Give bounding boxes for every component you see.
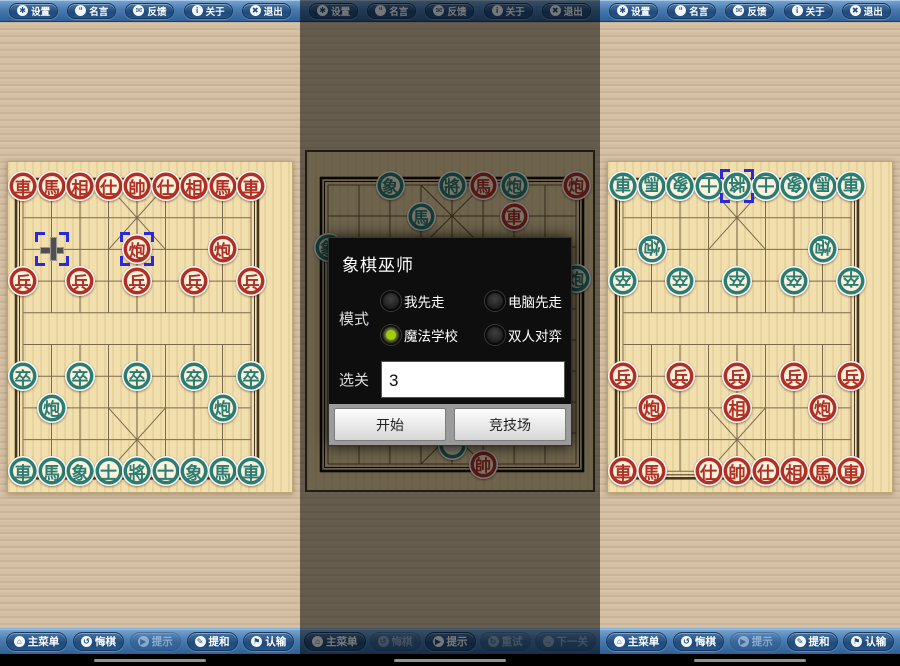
mode-options: 我先走 电脑先走 魔法学校 双人对弈 bbox=[381, 284, 565, 352]
home-strip bbox=[300, 654, 600, 666]
undo-button[interactable]: ↺悔棋 bbox=[73, 632, 124, 651]
button-label: 主菜单 bbox=[628, 634, 660, 649]
speech-icon: “ bbox=[675, 5, 686, 16]
piece-馬[interactable]: 馬 bbox=[637, 171, 667, 201]
piece-卒[interactable]: 卒 bbox=[8, 361, 38, 391]
piece-馬[interactable]: 馬 bbox=[208, 456, 238, 486]
piece-char: 士 bbox=[94, 456, 124, 486]
piece-char: 炮 bbox=[808, 234, 838, 264]
panel-game-left: ✱设置“名言✉反馈i关于✖退出車馬相仕帥仕相馬車炮炮兵兵兵兵兵卒卒卒卒卒炮炮車馬… bbox=[0, 0, 300, 666]
button-label: 提示 bbox=[752, 634, 773, 649]
piece-炮[interactable]: 炮 bbox=[637, 393, 667, 423]
radio-icon bbox=[485, 325, 505, 345]
exit-icon: ✖ bbox=[250, 5, 261, 16]
button-label: 悔棋 bbox=[695, 634, 716, 649]
gear-icon: ✱ bbox=[617, 5, 628, 16]
main-menu-button[interactable]: ⌂主菜单 bbox=[606, 632, 668, 651]
piece-char: 卒 bbox=[608, 266, 638, 296]
piece-char: 卒 bbox=[722, 266, 752, 296]
home-strip bbox=[600, 654, 900, 666]
about-button[interactable]: i关于 bbox=[184, 3, 233, 19]
radio-two-player[interactable]: 双人对弈 bbox=[485, 325, 565, 345]
piece-char: 車 bbox=[236, 171, 266, 201]
mail-icon: ✉ bbox=[133, 5, 144, 16]
piece-象[interactable]: 象 bbox=[665, 171, 695, 201]
level-select-dialog: 象棋巫师 模式 我先走 电脑先走 魔法学校 bbox=[328, 237, 572, 446]
piece-象[interactable]: 象 bbox=[65, 456, 95, 486]
piece-char: 卒 bbox=[236, 361, 266, 391]
piece-char: 車 bbox=[8, 456, 38, 486]
quotes-button[interactable]: “名言 bbox=[667, 3, 716, 19]
piece-卒[interactable]: 卒 bbox=[836, 266, 866, 296]
main-menu-button[interactable]: ⌂主菜单 bbox=[6, 632, 68, 651]
piece-char: 卒 bbox=[179, 361, 209, 391]
resign-button[interactable]: ⚑认输 bbox=[243, 632, 294, 651]
piece-將[interactable]: 將 bbox=[122, 456, 152, 486]
xiangqi-board: 車馬相仕帥仕相馬車炮炮兵兵兵兵兵卒卒卒卒卒炮炮車馬象士將士象馬車 bbox=[7, 161, 293, 493]
piece-兵[interactable]: 兵 bbox=[608, 361, 638, 391]
radio-label: 电脑先走 bbox=[508, 291, 562, 311]
piece-兵[interactable]: 兵 bbox=[179, 266, 209, 296]
exit-button[interactable]: ✖退出 bbox=[842, 3, 891, 19]
button-label: 关于 bbox=[206, 4, 225, 18]
home-indicator[interactable] bbox=[694, 659, 806, 662]
button-label: 提和 bbox=[809, 634, 830, 649]
piece-卒[interactable]: 卒 bbox=[722, 266, 752, 296]
piece-char: 兵 bbox=[122, 266, 152, 296]
home-icon: ⌂ bbox=[614, 636, 625, 647]
piece-將[interactable]: 將 bbox=[722, 171, 752, 201]
feedback-button[interactable]: ✉反馈 bbox=[725, 3, 774, 19]
offer-draw-button[interactable]: ✎提和 bbox=[187, 632, 238, 651]
feedback-button[interactable]: ✉反馈 bbox=[125, 3, 174, 19]
piece-char: 車 bbox=[8, 171, 38, 201]
piece-char: 馬 bbox=[37, 456, 67, 486]
piece-char: 馬 bbox=[208, 456, 238, 486]
piece-char: 炮 bbox=[37, 393, 67, 423]
radio-label: 我先走 bbox=[404, 291, 445, 311]
piece-仕[interactable]: 仕 bbox=[694, 456, 724, 486]
button-label: 认输 bbox=[865, 634, 886, 649]
arena-button[interactable]: 竞技场 bbox=[454, 408, 566, 441]
radio-computer-first[interactable]: 电脑先走 bbox=[485, 291, 565, 311]
piece-仕[interactable]: 仕 bbox=[94, 171, 124, 201]
home-indicator[interactable] bbox=[394, 659, 506, 662]
piece-車[interactable]: 車 bbox=[836, 171, 866, 201]
dialog-title: 象棋巫师 bbox=[342, 251, 414, 276]
piece-char: 相 bbox=[722, 393, 752, 423]
piece-char: 車 bbox=[836, 456, 866, 486]
piece-車[interactable]: 車 bbox=[608, 456, 638, 486]
piece-帥[interactable]: 帥 bbox=[122, 171, 152, 201]
piece-相[interactable]: 相 bbox=[722, 393, 752, 423]
piece-char: 炮 bbox=[122, 234, 152, 264]
button-label: 退出 bbox=[864, 4, 883, 18]
piece-車[interactable]: 車 bbox=[236, 456, 266, 486]
piece-兵[interactable]: 兵 bbox=[236, 266, 266, 296]
board-grid bbox=[8, 162, 294, 494]
hint-button[interactable]: ▶提示 bbox=[730, 632, 781, 651]
pencil-icon: ✎ bbox=[195, 636, 206, 647]
piece-char: 車 bbox=[836, 171, 866, 201]
piece-char: 車 bbox=[236, 456, 266, 486]
piece-char: 兵 bbox=[836, 361, 866, 391]
level-input[interactable]: 3 bbox=[381, 361, 565, 398]
piece-車[interactable]: 車 bbox=[8, 171, 38, 201]
radio-i-go-first[interactable]: 我先走 bbox=[381, 291, 485, 311]
bottom-toolbar: ⌂主菜单↺悔棋▶提示✎提和⚑认输 bbox=[600, 628, 900, 654]
screen: ✱设置“名言✉反馈i关于✖退出車馬相仕帥仕相馬車炮炮兵兵兵兵兵卒卒卒卒卒炮炮車馬… bbox=[0, 0, 900, 666]
piece-char: 兵 bbox=[665, 361, 695, 391]
button-label: 认输 bbox=[265, 634, 286, 649]
piece-兵[interactable]: 兵 bbox=[722, 361, 752, 391]
piece-char: 象 bbox=[779, 171, 809, 201]
top-toolbar: ✱设置“名言✉反馈i关于✖退出 bbox=[600, 0, 900, 22]
radio-magic-school[interactable]: 魔法学校 bbox=[381, 325, 485, 345]
piece-char: 炮 bbox=[208, 234, 238, 264]
piece-char: 卒 bbox=[665, 266, 695, 296]
button-label: 反馈 bbox=[747, 4, 766, 18]
level-row: 选关 3 bbox=[339, 360, 565, 398]
piece-兵[interactable]: 兵 bbox=[836, 361, 866, 391]
piece-char: 炮 bbox=[808, 393, 838, 423]
button-label: 反馈 bbox=[147, 4, 166, 18]
resign-button[interactable]: ⚑认输 bbox=[843, 632, 894, 651]
radio-label: 双人对弈 bbox=[508, 325, 562, 345]
undo-icon: ↺ bbox=[81, 636, 92, 647]
piece-相[interactable]: 相 bbox=[179, 171, 209, 201]
button-label: 设置 bbox=[31, 4, 50, 18]
piece-兵[interactable]: 兵 bbox=[779, 361, 809, 391]
button-label: 名言 bbox=[89, 4, 108, 18]
piece-char: 卒 bbox=[8, 361, 38, 391]
piece-char: 卒 bbox=[836, 266, 866, 296]
settings-button[interactable]: ✱设置 bbox=[609, 3, 658, 19]
piece-char: 相 bbox=[179, 171, 209, 201]
radio-icon bbox=[381, 291, 401, 311]
piece-char: 兵 bbox=[8, 266, 38, 296]
undo-button[interactable]: ↺悔棋 bbox=[673, 632, 724, 651]
piece-char: 兵 bbox=[608, 361, 638, 391]
mode-row: 模式 我先走 电脑先走 魔法学校 bbox=[339, 284, 565, 352]
piece-馬[interactable]: 馬 bbox=[808, 456, 838, 486]
undo-icon: ↺ bbox=[681, 636, 692, 647]
piece-卒[interactable]: 卒 bbox=[665, 266, 695, 296]
panel-level-dialog: ✱设置“名言✉反馈i关于✖退出象將馬炮炮馬車象炮帥⌂主菜单↺悔棋▶提示↻重试→下… bbox=[300, 0, 600, 666]
piece-帥[interactable]: 帥 bbox=[722, 456, 752, 486]
piece-char: 馬 bbox=[808, 171, 838, 201]
piece-char: 將 bbox=[122, 456, 152, 486]
piece-馬[interactable]: 馬 bbox=[37, 171, 67, 201]
piece-士[interactable]: 士 bbox=[694, 171, 724, 201]
home-indicator[interactable] bbox=[94, 659, 206, 662]
button-label: 提示 bbox=[152, 634, 173, 649]
pencil-icon: ✎ bbox=[795, 636, 806, 647]
home-icon: ⌂ bbox=[14, 636, 25, 647]
piece-char: 炮 bbox=[637, 393, 667, 423]
piece-char: 兵 bbox=[236, 266, 266, 296]
piece-char: 馬 bbox=[637, 456, 667, 486]
button-label: 提和 bbox=[209, 634, 230, 649]
bottom-toolbar: ⌂主菜单↺悔棋▶提示✎提和⚑认输 bbox=[0, 628, 300, 654]
piece-char: 兵 bbox=[179, 266, 209, 296]
piece-char: 將 bbox=[722, 171, 752, 201]
piece-char: 仕 bbox=[151, 171, 181, 201]
panel-game-right: ✱设置“名言✉反馈i关于✖退出車馬象士將士象馬車炮炮卒卒卒卒卒兵兵兵兵兵炮相炮車… bbox=[600, 0, 900, 666]
piece-兵[interactable]: 兵 bbox=[8, 266, 38, 296]
piece-車[interactable]: 車 bbox=[608, 171, 638, 201]
piece-char: 車 bbox=[608, 171, 638, 201]
piece-char: 卒 bbox=[779, 266, 809, 296]
piece-char: 相 bbox=[779, 456, 809, 486]
level-label: 选关 bbox=[339, 369, 381, 390]
home-strip bbox=[0, 654, 300, 666]
piece-士[interactable]: 士 bbox=[751, 171, 781, 201]
button-label: 名言 bbox=[689, 4, 708, 18]
piece-char: 相 bbox=[65, 171, 95, 201]
hint-icon: ▶ bbox=[738, 636, 749, 647]
radio-icon bbox=[381, 325, 401, 345]
piece-char: 馬 bbox=[37, 171, 67, 201]
button-label: 关于 bbox=[806, 4, 825, 18]
piece-char: 炮 bbox=[208, 393, 238, 423]
button-label: 设置 bbox=[631, 4, 650, 18]
exit-button[interactable]: ✖退出 bbox=[242, 3, 291, 19]
piece-char: 象 bbox=[65, 456, 95, 486]
info-icon: i bbox=[192, 5, 203, 16]
piece-相[interactable]: 相 bbox=[779, 456, 809, 486]
piece-車[interactable]: 車 bbox=[836, 456, 866, 486]
piece-char: 象 bbox=[665, 171, 695, 201]
piece-炮[interactable]: 炮 bbox=[208, 234, 238, 264]
piece-相[interactable]: 相 bbox=[65, 171, 95, 201]
piece-char: 馬 bbox=[637, 171, 667, 201]
piece-炮[interactable]: 炮 bbox=[122, 234, 152, 264]
piece-象[interactable]: 象 bbox=[779, 171, 809, 201]
piece-炮[interactable]: 炮 bbox=[808, 393, 838, 423]
piece-士[interactable]: 士 bbox=[94, 456, 124, 486]
button-label: 主菜单 bbox=[28, 634, 60, 649]
radio-icon bbox=[485, 291, 505, 311]
piece-車[interactable]: 車 bbox=[236, 171, 266, 201]
piece-卒[interactable]: 卒 bbox=[608, 266, 638, 296]
piece-仕[interactable]: 仕 bbox=[151, 171, 181, 201]
piece-車[interactable]: 車 bbox=[8, 456, 38, 486]
piece-char: 兵 bbox=[779, 361, 809, 391]
quotes-button[interactable]: “名言 bbox=[67, 3, 116, 19]
start-button[interactable]: 开始 bbox=[334, 408, 446, 441]
button-label: 退出 bbox=[264, 4, 283, 18]
about-button[interactable]: i关于 bbox=[784, 3, 833, 19]
piece-象[interactable]: 象 bbox=[179, 456, 209, 486]
gear-icon: ✱ bbox=[17, 5, 28, 16]
board-grid bbox=[608, 162, 894, 494]
flag-icon: ⚑ bbox=[851, 636, 862, 647]
mode-label: 模式 bbox=[339, 308, 381, 329]
hint-button[interactable]: ▶提示 bbox=[130, 632, 181, 651]
piece-炮[interactable]: 炮 bbox=[208, 393, 238, 423]
piece-char: 仕 bbox=[694, 456, 724, 486]
piece-char: 兵 bbox=[65, 266, 95, 296]
piece-char: 卒 bbox=[65, 361, 95, 391]
piece-char: 帥 bbox=[722, 456, 752, 486]
piece-馬[interactable]: 馬 bbox=[808, 171, 838, 201]
piece-兵[interactable]: 兵 bbox=[665, 361, 695, 391]
piece-char: 兵 bbox=[722, 361, 752, 391]
radio-label: 魔法学校 bbox=[404, 325, 458, 345]
piece-char: 炮 bbox=[637, 234, 667, 264]
piece-char: 馬 bbox=[808, 456, 838, 486]
button-label: 悔棋 bbox=[95, 634, 116, 649]
piece-卒[interactable]: 卒 bbox=[236, 361, 266, 391]
piece-兵[interactable]: 兵 bbox=[122, 266, 152, 296]
piece-char: 卒 bbox=[122, 361, 152, 391]
piece-char: 仕 bbox=[94, 171, 124, 201]
settings-button[interactable]: ✱设置 bbox=[9, 3, 58, 19]
piece-char: 馬 bbox=[208, 171, 238, 201]
piece-兵[interactable]: 兵 bbox=[65, 266, 95, 296]
piece-char: 士 bbox=[694, 171, 724, 201]
flag-icon: ⚑ bbox=[251, 636, 262, 647]
piece-卒[interactable]: 卒 bbox=[179, 361, 209, 391]
mail-icon: ✉ bbox=[733, 5, 744, 16]
exit-icon: ✖ bbox=[850, 5, 861, 16]
piece-char: 象 bbox=[179, 456, 209, 486]
piece-馬[interactable]: 馬 bbox=[208, 171, 238, 201]
cursor-crosshair bbox=[40, 237, 64, 261]
piece-馬[interactable]: 馬 bbox=[37, 456, 67, 486]
offer-draw-button[interactable]: ✎提和 bbox=[787, 632, 838, 651]
piece-char: 車 bbox=[608, 456, 638, 486]
speech-icon: “ bbox=[75, 5, 86, 16]
xiangqi-board: 車馬象士將士象馬車炮炮卒卒卒卒卒兵兵兵兵兵炮相炮車馬仕帥仕相馬車 bbox=[607, 161, 893, 493]
dialog-buttons: 开始 竞技场 bbox=[329, 404, 571, 445]
piece-炮[interactable]: 炮 bbox=[637, 234, 667, 264]
piece-卒[interactable]: 卒 bbox=[65, 361, 95, 391]
top-toolbar: ✱设置“名言✉反馈i关于✖退出 bbox=[0, 0, 300, 22]
piece-炮[interactable]: 炮 bbox=[808, 234, 838, 264]
piece-char: 仕 bbox=[751, 456, 781, 486]
piece-卒[interactable]: 卒 bbox=[779, 266, 809, 296]
info-icon: i bbox=[792, 5, 803, 16]
piece-仕[interactable]: 仕 bbox=[751, 456, 781, 486]
piece-馬[interactable]: 馬 bbox=[637, 456, 667, 486]
piece-char: 士 bbox=[151, 456, 181, 486]
piece-卒[interactable]: 卒 bbox=[122, 361, 152, 391]
piece-char: 士 bbox=[751, 171, 781, 201]
piece-char: 帥 bbox=[122, 171, 152, 201]
hint-icon: ▶ bbox=[138, 636, 149, 647]
piece-炮[interactable]: 炮 bbox=[37, 393, 67, 423]
piece-士[interactable]: 士 bbox=[151, 456, 181, 486]
